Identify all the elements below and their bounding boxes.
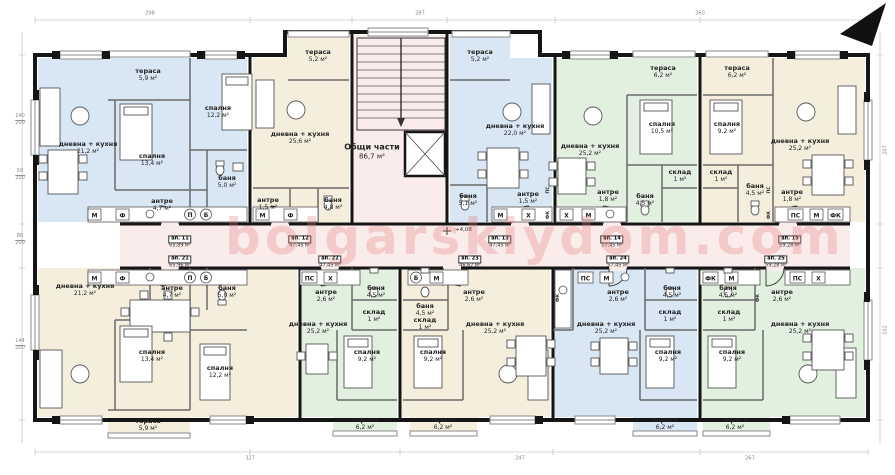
room-label-storage: склад1 м² bbox=[710, 168, 733, 184]
room-label-storage: склад1 м² bbox=[669, 168, 692, 184]
washer-box: М bbox=[260, 213, 266, 220]
room-label-hall: антре2,6 м² bbox=[463, 288, 485, 304]
room-label-hall: антре4,7 м² bbox=[151, 197, 173, 213]
appliance-box: Х bbox=[816, 276, 821, 283]
common-area-name: Общи части bbox=[344, 143, 400, 153]
apartment-tag: ап. 2346,67 м² bbox=[458, 245, 481, 268]
round-table bbox=[71, 365, 89, 383]
room-label-living: дневна + кухня25,6 м² bbox=[271, 130, 330, 146]
room-label-bath: баня4,5 м² bbox=[636, 192, 654, 208]
room-label-terrace: тераса6,2 м² bbox=[650, 64, 675, 80]
washer-box: М bbox=[729, 276, 735, 283]
room-label-bedroom: спалня13,4 м² bbox=[139, 152, 165, 168]
apartment-tag: ап. 1247,45 м² bbox=[288, 225, 311, 248]
room-label-hall: антре1,8 м² bbox=[781, 188, 803, 204]
room-label-terrace: тераса5,9 м² bbox=[135, 67, 160, 83]
sofa bbox=[40, 350, 62, 408]
common-area-value: 86,7 м² bbox=[344, 153, 400, 162]
room-label-bath: баня4,5 м² bbox=[719, 284, 737, 300]
north-arrow bbox=[840, 3, 886, 46]
room-label-bedroom: спалня12,2 м² bbox=[207, 364, 233, 380]
stairs bbox=[357, 38, 445, 130]
room-label-living: дневна + кухня25,2 м² bbox=[771, 137, 830, 153]
floor-plan: М Ф П Б М Ф М Х Х М ПС М ФК М Ф П Б ПС Х… bbox=[0, 0, 895, 475]
apartment-tag: ап. 1347,45 м² bbox=[488, 225, 511, 248]
room-label-living: дневна + кухня21,2 м² bbox=[56, 282, 115, 298]
appliance-box: Х bbox=[328, 276, 333, 283]
room-label-bath: баня5,0 м² bbox=[218, 174, 236, 190]
room-label-storage: склад1 м² bbox=[363, 308, 386, 324]
room-label-bedroom: спалня9,2 м² bbox=[714, 120, 740, 136]
washer-box: М bbox=[814, 213, 820, 220]
room-label-terrace: тераса6,2 м² bbox=[724, 64, 749, 80]
corridor bbox=[120, 224, 850, 268]
fridge-box: Ф bbox=[120, 213, 126, 220]
dimension-label: 102 bbox=[883, 325, 889, 335]
room-label-hall: антре1,5 м² bbox=[257, 196, 279, 212]
room-label-terrace: тераса6,2 м² bbox=[722, 416, 747, 432]
boiler-circle: Б bbox=[414, 275, 419, 282]
washer-box: М bbox=[498, 213, 504, 220]
sofa bbox=[40, 88, 60, 146]
room-label-hall: антре1,5 м² bbox=[517, 190, 539, 206]
room-label-terrace: тераса6,2 м² bbox=[352, 416, 377, 432]
boiler-circle: Б bbox=[204, 275, 209, 282]
room-label-hall: антре4,7 м² bbox=[161, 284, 183, 300]
room-label-living: дневна + кухня25,2 м² bbox=[771, 320, 830, 336]
shaft-fk: ФК bbox=[755, 294, 761, 302]
common-area-label: Общи части 86,7 м² bbox=[344, 143, 400, 162]
shaft-ps: ПС bbox=[766, 186, 772, 194]
room-label-terrace: тераса6,2 м² bbox=[430, 416, 455, 432]
dimension-label: 327 bbox=[245, 456, 255, 462]
appliance-box: Х bbox=[564, 213, 569, 220]
room-label-bedroom: спалня9,2 м² bbox=[420, 348, 446, 364]
washer-box: М bbox=[434, 276, 440, 283]
room-label-bedroom: спалня13,4 м² bbox=[139, 348, 165, 364]
toilet bbox=[216, 161, 224, 175]
room-label-storage: склад1 м² bbox=[414, 316, 437, 332]
shaft-ps: ПС bbox=[545, 186, 551, 194]
boiler-circle: Б bbox=[204, 212, 209, 219]
round-table bbox=[797, 103, 815, 121]
room-label-bath: баня5,0 м² bbox=[218, 284, 236, 300]
room-label-hall: антре2,6 м² bbox=[771, 288, 793, 304]
room-label-living: дневна + кухня21,2 м² bbox=[59, 140, 118, 156]
room-label-hall: антре2,6 м² bbox=[315, 288, 337, 304]
apartment-tag: ап. 2559,28 м² bbox=[764, 245, 787, 268]
room-label-terrace: тераса5,9 м² bbox=[135, 417, 160, 433]
room-label-bath: баня4,5 м² bbox=[746, 182, 764, 198]
room-label-living: дневна + кухня25,2 м² bbox=[289, 320, 348, 336]
dimension-label: 50200 bbox=[15, 169, 25, 181]
pantry-box: ПС bbox=[791, 213, 801, 220]
room-label-living: дневна + кухня22,0 м² bbox=[486, 122, 545, 138]
appliance-box: ФК bbox=[830, 213, 841, 220]
dimension-label: 144200 bbox=[15, 339, 25, 351]
stove-circle: П bbox=[187, 275, 192, 282]
apartment-tag: ап. 2247,45 м² bbox=[318, 245, 341, 268]
round-table bbox=[503, 103, 521, 121]
room-label-bedroom: спалня10,5 м² bbox=[649, 120, 675, 136]
dimension-label: 287 bbox=[415, 11, 425, 17]
room-label-bedroom: спалня9,2 м² bbox=[354, 348, 380, 364]
apartment-tag: ап. 2165,96 м² bbox=[168, 245, 191, 268]
room-label-bedroom: спалня9,2 м² bbox=[719, 348, 745, 364]
washer-box: М bbox=[586, 213, 592, 220]
bed bbox=[222, 74, 252, 130]
room-label-hall: антре2,6 м² bbox=[607, 288, 629, 304]
room-label-bath: баня4,8 м² bbox=[324, 196, 342, 212]
room-label-living: дневна + кухня25,2 м² bbox=[577, 320, 636, 336]
round-table bbox=[584, 107, 602, 125]
elevator bbox=[405, 132, 445, 176]
apartment-tag: ап. 2457,45 м² bbox=[606, 245, 629, 268]
pantry-box: ПС bbox=[581, 276, 591, 283]
shaft-fk: ФК bbox=[555, 294, 561, 302]
room-label-bath: баня4,5 м² bbox=[367, 284, 385, 300]
dimension-label: 267 bbox=[745, 456, 755, 462]
dimension-label: 360 bbox=[695, 11, 705, 17]
room-label-living: дневна + кухня25,2 м² bbox=[466, 320, 525, 336]
room-label-hall: антре1,8 м² bbox=[597, 188, 619, 204]
stove-circle: П bbox=[187, 212, 192, 219]
room-label-terrace: тераса5,2 м² bbox=[305, 48, 330, 64]
round-table bbox=[499, 365, 517, 383]
dimension-label: 140200 bbox=[15, 114, 25, 126]
sofa bbox=[838, 86, 856, 134]
appliance-box: Х bbox=[526, 213, 531, 220]
round-table bbox=[71, 107, 89, 125]
dimension-label: 207 bbox=[883, 145, 889, 155]
shaft-fk: ФК bbox=[766, 211, 772, 219]
room-label-terrace: тераса6,2 м² bbox=[652, 416, 677, 432]
pantry-box: ПС bbox=[305, 276, 315, 283]
room-label-bath: баня4,5 м² bbox=[663, 284, 681, 300]
dimension-label: 298 bbox=[145, 11, 155, 17]
washer-box: М bbox=[604, 276, 610, 283]
toilet bbox=[751, 201, 759, 215]
room-label-living: дневна + кухня25,2 м² bbox=[561, 142, 620, 158]
dimension-label: 80200 bbox=[15, 234, 25, 246]
fridge-box: Ф bbox=[120, 276, 126, 283]
room-label-storage: склад1 м² bbox=[659, 308, 682, 324]
dimension-label: 247 bbox=[515, 456, 525, 462]
sink bbox=[233, 163, 243, 171]
plan-linework: М Ф П Б М Ф М Х Х М ПС М ФК М Ф П Б ПС Х… bbox=[0, 0, 895, 475]
washer-box: М bbox=[92, 213, 98, 220]
room-label-bath: баня5,1 м² bbox=[459, 192, 477, 208]
round-table bbox=[287, 101, 305, 119]
room-label-bedroom: спалня12,2 м² bbox=[205, 104, 231, 120]
elevation-label: +4,08 bbox=[455, 227, 472, 233]
room-label-bedroom: спалня9,2 м² bbox=[655, 348, 681, 364]
apartment-top-right bbox=[555, 58, 697, 222]
pantry-box: ПС bbox=[793, 276, 803, 283]
sofa bbox=[256, 80, 274, 128]
room-label-terrace: тераса5,2 м² bbox=[467, 48, 492, 64]
fridge-box: Ф bbox=[288, 213, 294, 220]
shaft-fk: ФК bbox=[545, 211, 551, 219]
appliance-box: ФК bbox=[705, 276, 716, 283]
room-label-storage: склад1 м² bbox=[718, 308, 741, 324]
